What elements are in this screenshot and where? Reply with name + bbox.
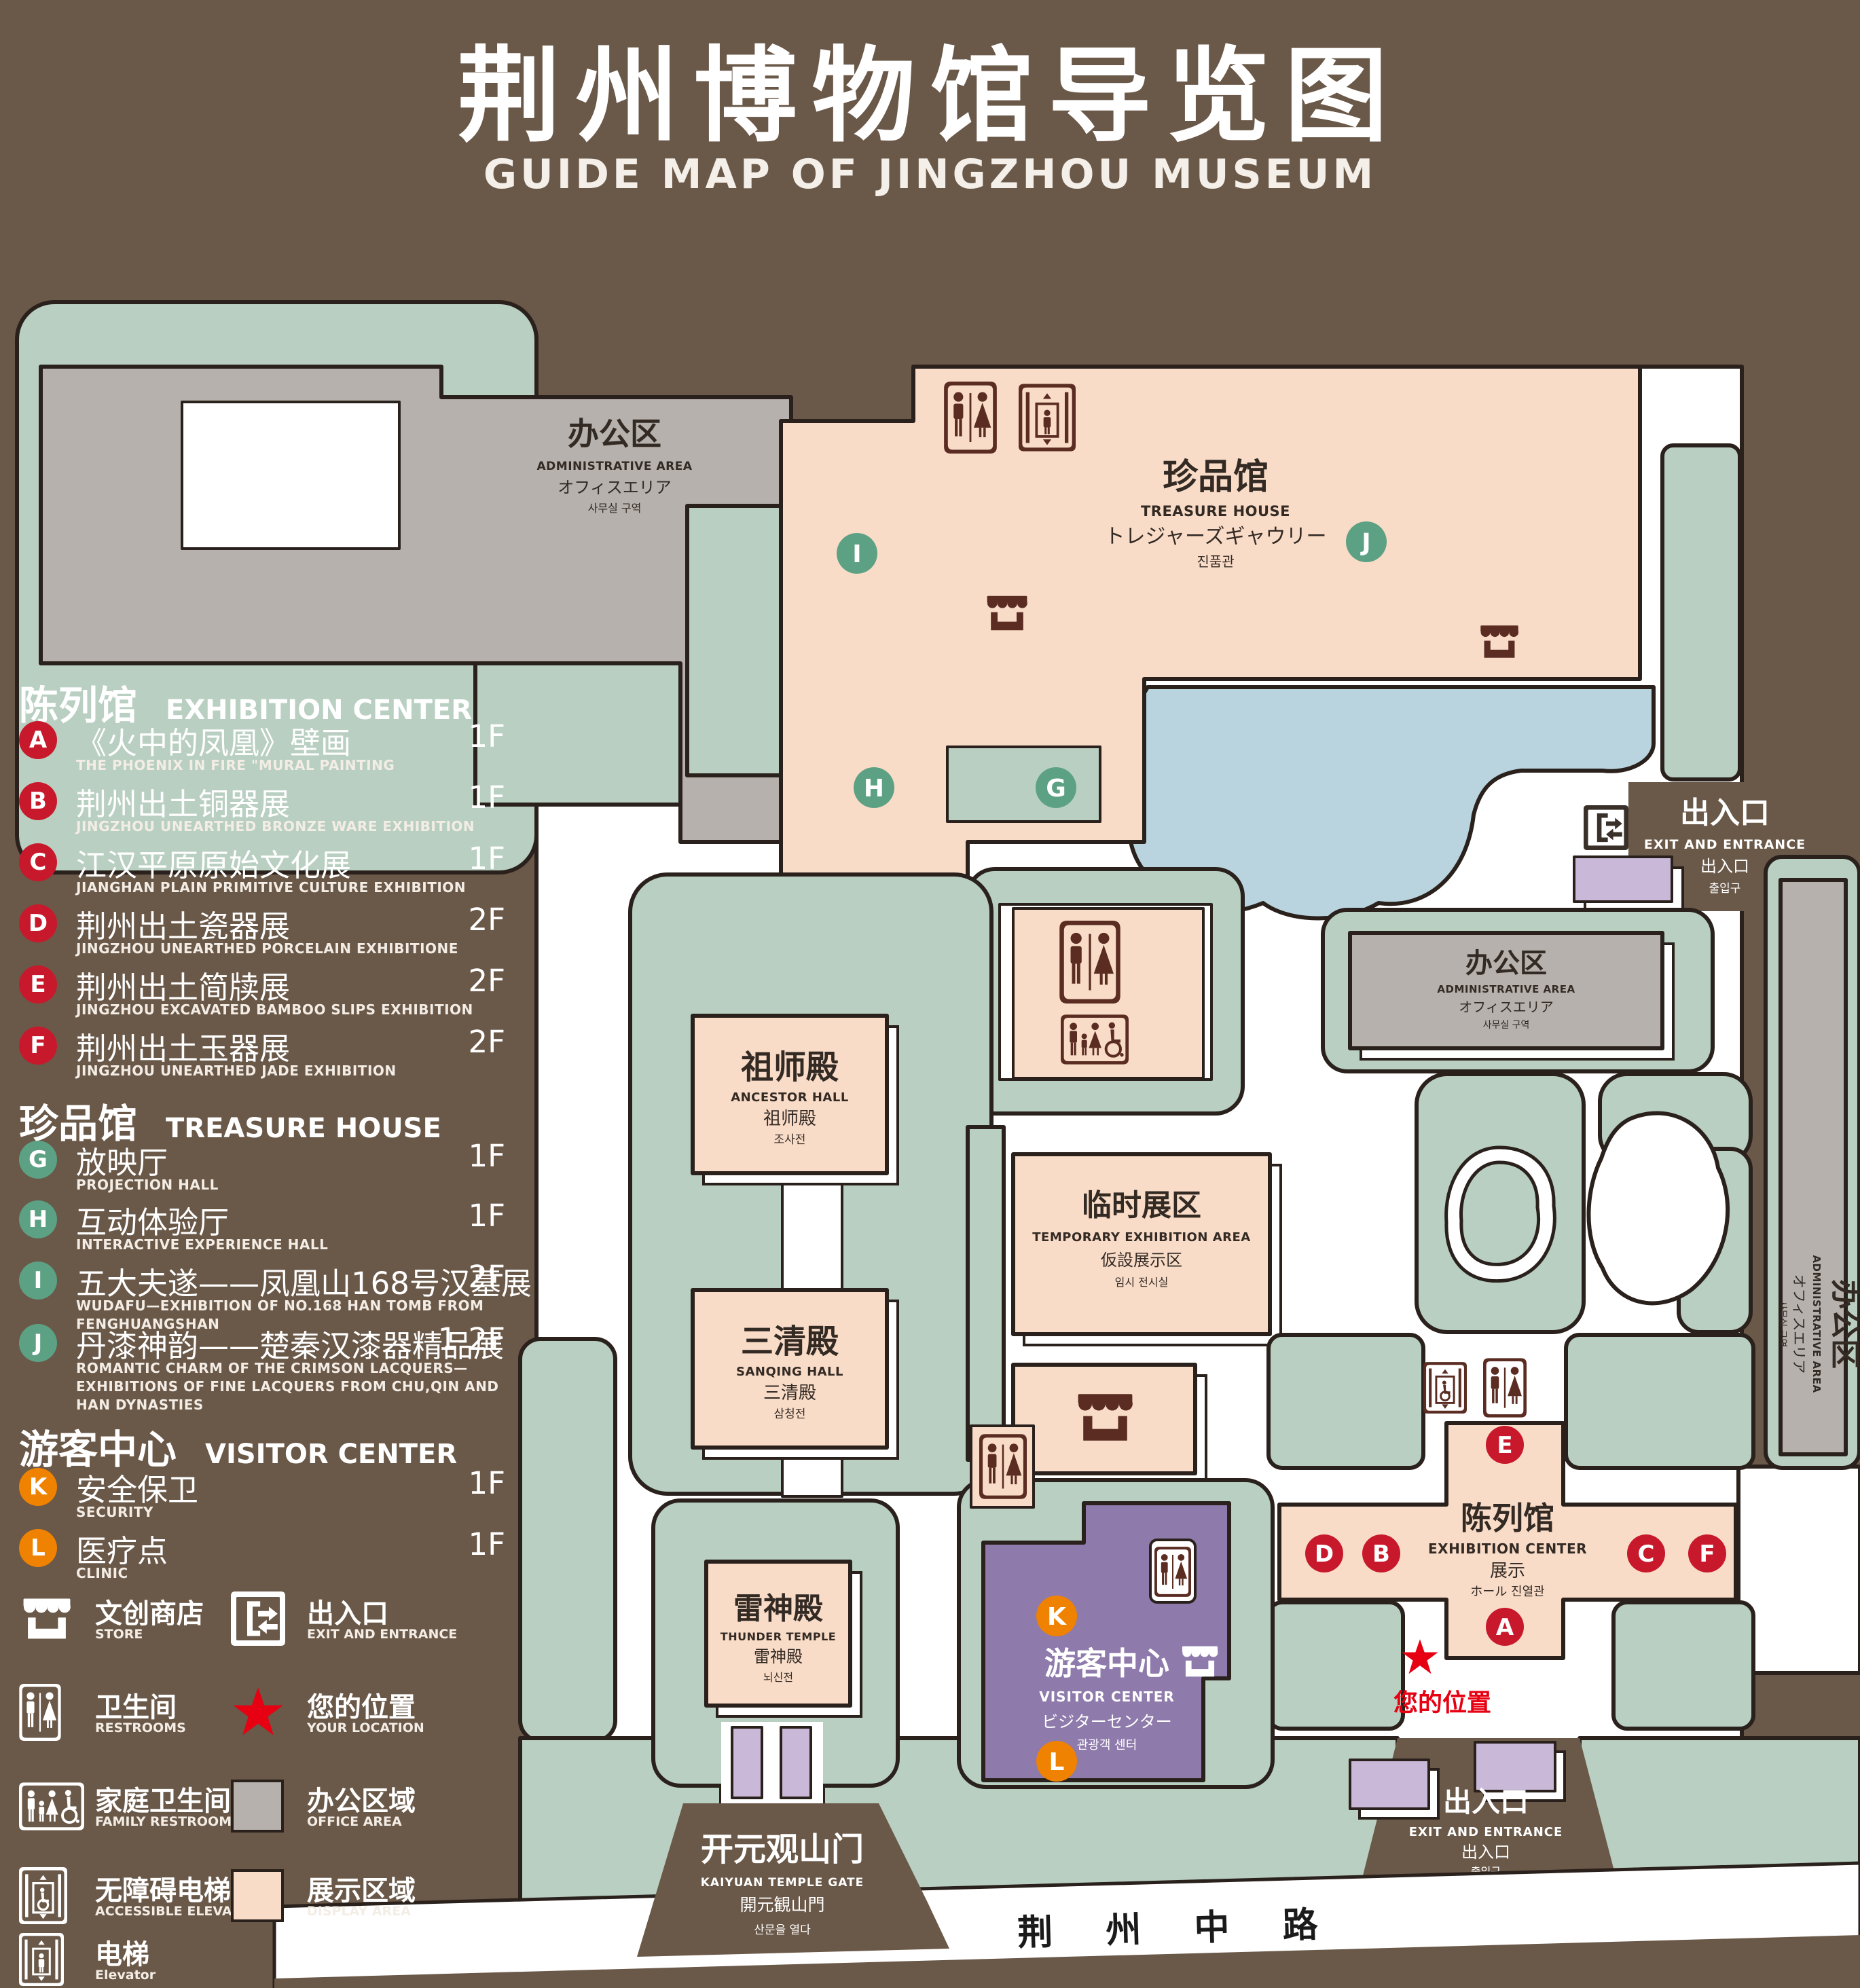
legend-item-floor: 2F xyxy=(468,963,505,999)
legend-item-floor: 1F xyxy=(468,779,505,815)
visitor-label-ja: ビジターセンター xyxy=(1042,1712,1172,1731)
badge-B: B xyxy=(1362,1534,1400,1572)
section-title-en: TREASURE HOUSE xyxy=(166,1113,441,1144)
badge-K: K xyxy=(1036,1596,1077,1636)
legend-item-floor: 1-2F xyxy=(438,1321,505,1357)
visitor-label-ko: 관광객 센터 xyxy=(1077,1738,1137,1752)
legend-item-en: JINGZHOU UNEARTHED BRONZE WARE EXHIBITIO… xyxy=(76,817,511,836)
svg-text:K: K xyxy=(1047,1603,1067,1631)
badge-D: D xyxy=(1305,1534,1343,1572)
symbol-zh: 家庭卫生间 xyxy=(95,1779,231,1818)
legend-item-floor: 1F xyxy=(468,718,505,754)
admin-nw-label-ko: 사무실 구역 xyxy=(588,502,642,515)
badge-H: H xyxy=(854,767,894,808)
admin-right-building: 办公区 ADMINISTRATIVE AREA オフィスエリア 사무실 구역 xyxy=(1323,910,1713,1071)
store-icon xyxy=(19,1589,84,1649)
svg-text:D: D xyxy=(1315,1541,1334,1568)
ancestor-label-zh: 祖师殿 xyxy=(741,1048,839,1086)
admin-far-right-ja: オフィスエリア xyxy=(1791,1274,1807,1374)
admin-nw-label-zh: 办公区 xyxy=(568,416,661,452)
legend-item-floor: 1F xyxy=(468,1526,505,1562)
svg-text:A: A xyxy=(1496,1614,1514,1641)
exit-right-en: EXIT AND ENTRANCE xyxy=(1644,837,1806,852)
legend-badge: F xyxy=(19,1027,57,1065)
exit-bottom-zh: 出入口 xyxy=(1443,1785,1529,1818)
gate-pillar xyxy=(781,1727,811,1798)
symbol-en: STORE xyxy=(95,1627,143,1642)
elevator-icon xyxy=(19,1930,84,1988)
sanqing-label-zh: 三清殿 xyxy=(741,1323,839,1361)
legend-badge: I xyxy=(19,1262,57,1300)
legend-badge: C xyxy=(19,843,57,881)
thunder-label-ja: 雷神殿 xyxy=(754,1647,803,1666)
gate-label-ja: 開元観山門 xyxy=(740,1895,824,1915)
ancestor-label-ko: 조사전 xyxy=(774,1133,806,1147)
exit-entrance-icon xyxy=(231,1589,296,1649)
legend-badge: A xyxy=(19,721,57,759)
visitor-center-building: 游客中心 VISITOR CENTER ビジターセンター 관광객 센터 K L xyxy=(959,1480,1273,1787)
svg-text:C: C xyxy=(1638,1541,1655,1568)
legend-panel: 陈列馆EXHIBITION CENTER A 《火中的凤凰》壁画 1F THE … xyxy=(0,0,530,1988)
badge-J: J xyxy=(1346,521,1387,562)
badge-G: G xyxy=(1036,767,1076,808)
exit-bottom-zh-small: 出入口 xyxy=(1461,1843,1510,1862)
admin-far-right-ko: 사무실 구역 xyxy=(1776,1301,1787,1348)
symbol-en: YOUR LOCATION xyxy=(307,1720,424,1735)
legend-item-en: ROMANTIC CHARM OF THE CRIMSON LACQUERS—E… xyxy=(76,1359,511,1414)
thunder-label-zh: 雷神殿 xyxy=(733,1591,823,1626)
legend-item-floor: 2F xyxy=(468,1024,505,1060)
symbol-zh: 卫生间 xyxy=(95,1685,177,1725)
temp-label-en: TEMPORARY EXHIBITION AREA xyxy=(1032,1230,1250,1245)
svg-text:B: B xyxy=(1372,1541,1390,1568)
symbol-en: OFFICE AREA xyxy=(307,1814,402,1829)
legend-badge: L xyxy=(19,1529,57,1567)
accessible-elevator-icon xyxy=(1423,1362,1467,1414)
section-title-en: VISITOR CENTER xyxy=(205,1439,457,1470)
symbol-zh: 您的位置 xyxy=(307,1685,416,1725)
badge-E: E xyxy=(1486,1426,1524,1464)
exit-right-building xyxy=(1574,857,1672,902)
legend-symbol-elevator: 电梯 Elevator xyxy=(19,1930,243,1988)
svg-text:L: L xyxy=(1049,1748,1065,1776)
exhibition-label-zh: 陈列馆 xyxy=(1461,1500,1554,1536)
ancestor-label-ja: 祖师殿 xyxy=(763,1109,816,1129)
temp-label-ja: 仮設展示区 xyxy=(1101,1251,1182,1270)
svg-text:J: J xyxy=(1360,529,1370,557)
legend-item-en: JIANGHAN PLAIN PRIMITIVE CULTURE EXHIBIT… xyxy=(76,879,511,897)
legend-badge: H xyxy=(19,1200,57,1238)
symbol-en: RESTROOMS xyxy=(95,1720,186,1735)
restroom-icon xyxy=(19,1682,84,1742)
svg-text:G: G xyxy=(1046,775,1066,803)
badge-L: L xyxy=(1036,1741,1077,1782)
legend-item-en: JINGZHOU EXCAVATED BAMBOO SLIPS EXHIBITI… xyxy=(76,1001,511,1019)
temporary-exhibition-building: 临时展区 TEMPORARY EXHIBITION AREA 仮設展示区 임시 … xyxy=(1013,1154,1281,1345)
exit-right-ko: 출입구 xyxy=(1709,882,1741,896)
lawn-center-strip xyxy=(968,1127,1004,1460)
exhibition-label-en: EXHIBITION CENTER xyxy=(1428,1541,1587,1557)
treasure-label-ko: 진품관 xyxy=(1197,553,1234,570)
symbol-en: Elevator xyxy=(95,1968,156,1983)
store-building xyxy=(1013,1365,1206,1484)
legend-symbol-exit: 出入口 EXIT AND ENTRANCE xyxy=(231,1589,455,1654)
gate-label-en: KAIYUAN TEMPLE GATE xyxy=(701,1876,864,1890)
legend-symbol-restroom: 卫生间 RESTROOMS xyxy=(19,1682,243,1748)
restroom-island xyxy=(968,869,1243,1113)
temp-label-ko: 임시 전시실 xyxy=(1115,1276,1169,1289)
ancestor-label-en: ANCESTOR HALL xyxy=(731,1090,849,1105)
symbol-zh: 电梯 xyxy=(95,1932,149,1972)
temp-label-zh: 临时展区 xyxy=(1082,1188,1201,1223)
svg-text:I: I xyxy=(852,540,861,568)
thunder-label-en: THUNDER TEMPLE xyxy=(721,1630,836,1643)
sanqing-label-ko: 삼청전 xyxy=(774,1407,806,1421)
legend-badge: G xyxy=(19,1141,57,1179)
visitor-label-en: VISITOR CENTER xyxy=(1039,1689,1175,1705)
sanqing-label-ja: 三清殿 xyxy=(763,1383,816,1403)
your-location-label: 您的位置 xyxy=(1393,1689,1491,1717)
treasure-label-ja: トレジャーズギャウリー xyxy=(1105,525,1327,549)
legend-symbol-family-restroom: 家庭卫生间 FAMILY RESTROOMS xyxy=(19,1776,243,1841)
admin-far-right-zh: 办公区 xyxy=(1827,1279,1860,1369)
symbol-en: DISPLAY AREA xyxy=(307,1904,411,1919)
display-area-swatch xyxy=(231,1866,296,1926)
exit-right-zh-small: 出入口 xyxy=(1700,857,1749,876)
legend-symbol-accessible-elevator: 无障碍电梯 ACCESSIBLE ELEVATOR xyxy=(19,1866,243,1931)
treasure-label-zh: 珍品馆 xyxy=(1163,457,1269,498)
exit-bottom-en: EXIT AND ENTRANCE xyxy=(1409,1825,1563,1839)
legend-badge: J xyxy=(19,1324,57,1362)
legend-badge: K xyxy=(19,1468,57,1506)
svg-text:E: E xyxy=(1497,1432,1512,1459)
admin-right-en: ADMINISTRATIVE AREA xyxy=(1437,983,1575,995)
garden-pond xyxy=(1588,1113,1728,1303)
admin-right-ja: オフィスエリア xyxy=(1459,999,1554,1015)
exit-entrance-bottom: 出入口 EXIT AND ENTRANCE 出入口 출입구 xyxy=(1350,1738,1619,1889)
legend-item-floor: 2F xyxy=(468,1259,505,1295)
admin-far-right-en: ADMINISTRATIVE AREA xyxy=(1810,1255,1823,1393)
symbol-zh: 文创商店 xyxy=(95,1591,204,1631)
admin-nw-label-en: ADMINISTRATIVE AREA xyxy=(537,460,693,473)
legend-item-floor: 1F xyxy=(468,1198,505,1234)
badge-F: F xyxy=(1688,1534,1726,1572)
badge-C: C xyxy=(1627,1534,1665,1572)
halls-axis: 祖师殿 ANCESTOR HALL 祖师殿 조사전 三清殿 SANQING HA… xyxy=(630,875,991,1496)
office-area-swatch xyxy=(231,1776,296,1836)
symbol-en: EXIT AND ENTRANCE xyxy=(307,1627,457,1642)
legend-item-en: JINGZHOU UNEARTHED JADE EXHIBITION xyxy=(76,1062,511,1080)
treasure-label-en: TREASURE HOUSE xyxy=(1141,503,1290,519)
your-location-star xyxy=(231,1682,296,1742)
treasure-lawn-notch xyxy=(947,747,1100,822)
exhibition-label-l4: ホール 진열관 xyxy=(1470,1585,1544,1599)
family-restroom-icon xyxy=(19,1776,84,1836)
legend-item-en: SECURITY xyxy=(76,1503,511,1522)
elevator-icon xyxy=(1019,384,1076,451)
accessible-elevator-icon xyxy=(19,1866,84,1926)
badge-I: I xyxy=(837,533,877,574)
symbol-zh: 办公区域 xyxy=(307,1779,416,1818)
badge-A: A xyxy=(1486,1608,1524,1646)
legend-item-floor: 1F xyxy=(468,1138,505,1174)
gate-label-zh: 开元观山门 xyxy=(701,1830,864,1869)
lawn-west-strip xyxy=(520,1339,615,1741)
legend-symbol-your-location: 您的位置 YOUR LOCATION xyxy=(231,1682,455,1748)
exit-right-zh: 出入口 xyxy=(1680,796,1770,830)
legend-badge: D xyxy=(19,904,57,942)
garden xyxy=(1417,1074,1751,1332)
legend-item-floor: 2F xyxy=(468,902,505,938)
lawn-northeast-strip xyxy=(1662,445,1740,779)
sanqing-label-en: SANQING HALL xyxy=(736,1365,843,1379)
thunder-label-ko: 뇌신전 xyxy=(763,1671,793,1684)
restroom-tab xyxy=(971,1426,1034,1507)
gate-label-ko: 산문을 열다 xyxy=(754,1923,811,1937)
symbol-zh: 展示区域 xyxy=(307,1869,416,1908)
legend-item-en: JINGZHOU UNEARTHED PORCELAIN EXHIBITIONE xyxy=(76,940,511,958)
admin-nw-label-ja: オフィスエリア xyxy=(558,478,672,497)
legend-item-en: THE PHOENIX IN FIRE "MURAL PAINTING xyxy=(76,756,511,775)
symbol-zh: 无障碍电梯 xyxy=(95,1869,231,1908)
admin-right-zh: 办公区 xyxy=(1465,948,1547,979)
legend-symbol-office-area: 办公区域 OFFICE AREA xyxy=(231,1776,455,1841)
svg-text:F: F xyxy=(1699,1541,1715,1568)
legend-item-en: INTERACTIVE EXPERIENCE HALL xyxy=(76,1236,511,1254)
symbol-zh: 出入口 xyxy=(307,1591,388,1631)
legend-badge: E xyxy=(19,965,57,1004)
legend-item-en: PROJECTION HALL xyxy=(76,1176,511,1194)
guide-map-page: 办公区 ADMINISTRATIVE AREA オフィスエリア 사무실 구역 出… xyxy=(0,0,1860,1988)
legend-item-floor: 1F xyxy=(468,841,505,877)
legend-symbol-store: 文创商店 STORE xyxy=(19,1589,243,1654)
exhibition-label-l3: 展示 xyxy=(1490,1561,1525,1581)
admin-far-right-building: 办公区 ADMINISTRATIVE AREA オフィスエリア 사무실 구역 xyxy=(1766,857,1860,1468)
admin-right-ko: 사무실 구역 xyxy=(1483,1020,1530,1031)
legend-badge: B xyxy=(19,782,57,820)
symbol-en: FAMILY RESTROOMS xyxy=(95,1814,241,1829)
legend-symbol-display-area: 展示区域 DISPLAY AREA xyxy=(231,1866,455,1931)
gate-pillar xyxy=(732,1727,762,1798)
legend-item-floor: 1F xyxy=(468,1465,505,1501)
visitor-label-zh: 游客中心 xyxy=(1044,1645,1169,1682)
legend-item-en: CLINIC xyxy=(76,1564,511,1583)
svg-text:H: H xyxy=(864,775,884,803)
